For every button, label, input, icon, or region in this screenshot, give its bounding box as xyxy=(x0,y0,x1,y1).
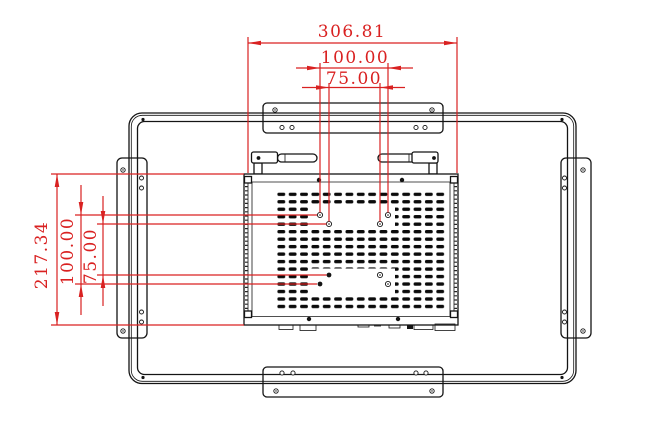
dimension-label-overall-height: 217.34 xyxy=(32,221,52,289)
wifi-antenna-right xyxy=(378,152,438,174)
panel-screw xyxy=(400,178,404,182)
frame-corner-weld-dot xyxy=(560,118,563,121)
engineering-drawing: 306.81 100.00 75.00 217.34 100.00 xyxy=(0,0,650,430)
antenna-screw xyxy=(432,156,436,160)
antenna-screw xyxy=(257,156,261,160)
dimension-overall-width: 306.81 xyxy=(248,22,457,173)
frame-corner-weld-dot xyxy=(141,118,144,121)
bottom-io-ports xyxy=(279,324,455,331)
panel-screw xyxy=(307,317,311,321)
dimension-label-vesa-width-75: 75.00 xyxy=(326,69,382,89)
dimension-label-vesa-height-100: 100.00 xyxy=(58,217,78,285)
dimension-label-vesa-width-100: 100.00 xyxy=(321,48,389,68)
engineering-drawing-canvas: 306.81 100.00 75.00 217.34 100.00 xyxy=(0,0,650,430)
dimension-label-vesa-height-75: 75.00 xyxy=(81,228,101,284)
frame-corner-weld-dot xyxy=(560,376,563,379)
frame-corner-weld-dot xyxy=(141,376,144,379)
panel-screw xyxy=(396,317,400,321)
dimension-label-overall-width: 306.81 xyxy=(318,22,386,42)
wifi-antenna-left xyxy=(252,152,318,174)
